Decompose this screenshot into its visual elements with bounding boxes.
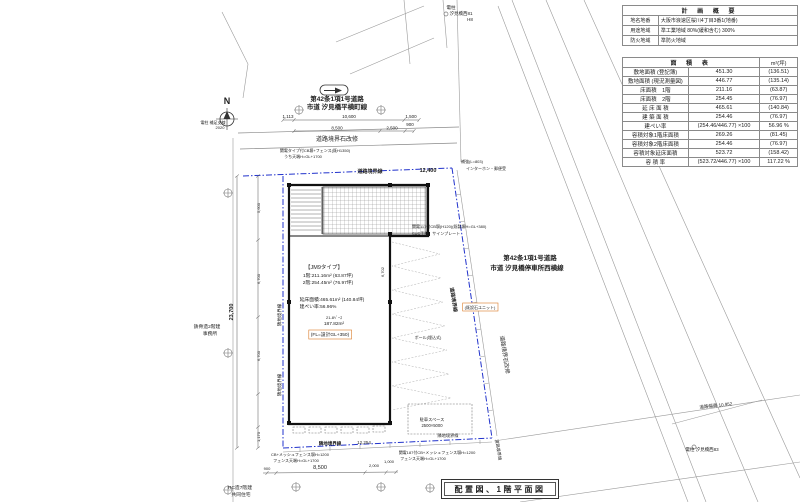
dim: 2,000 [369,463,380,468]
area-row-tsubo: 117.22 % [760,158,798,167]
plan-row-label: 用途地域 [623,26,659,36]
pole-symbol [444,12,448,16]
plan-row-value: 準防火地域 [658,36,797,46]
note-box: (FL=設計GL+350) [311,331,350,338]
note: 187.82m² [324,321,345,327]
dim: 1,000 [384,459,395,464]
table-row: 敷地面積 (登記簿)451.30(136.51) [623,68,798,77]
pole-note: 汐見橋西81 [449,10,473,17]
fence-note: CB+メッシュフェンス塀H=1200 [271,451,330,457]
fence-note: 関電117付CB塀(H120)(既製塀H=GL+380) [412,223,487,229]
area-row-value: 465.61 [688,104,760,113]
fence-note: 関電187付CB+メッシュフェンス塀H=1200 [399,449,476,455]
note: SUS手摺、サインプレート [412,230,460,236]
site-boundary-label: 隣地境界線 [276,303,283,326]
dim: 1,500 [405,114,417,119]
pole-note: 電柱 汐見橋西83 [685,446,719,453]
table-row: 床面積 2階254.45(76.97) [623,95,798,104]
road-name-north: 市道 汐見橋平横町線 [307,102,368,111]
site-plan-sheet: N電柱 補足支線2020電柱汐見橋西81H8マンホール第42条1項1号道路市道 … [0,0,800,502]
area-row-tsubo: (158.42) [760,149,798,158]
plan-row-label: 地名地番 [623,16,659,26]
note: 補強(L=803) [461,158,484,164]
pole-note: H8 [467,17,473,22]
area-row-value: (523.72/446.77) ×100 [688,158,760,167]
neighbor-building-label: RC造7階建 [228,484,252,491]
pole-note: 2020 [216,125,226,130]
area-row-value: 451.30 [688,68,760,77]
drawing-title-box: 配置図、1階平面図 [441,479,559,499]
area-row-label: 建ぺい率 [623,122,689,131]
plan-overview-table: 計 画 概 要 地名地番大阪市浪速区桜川4丁目3番1(地番)用途地域準工業地域 … [622,5,798,46]
building-entrance-hatch [323,187,426,234]
area-row-label: 延 床 面 積 [623,104,689,113]
site-boundary-label: 隣地境界線 [276,373,283,396]
table-row: 敷地面積 (現況測量図)446.77(135.14) [623,77,798,86]
fence-note: 関電タイプ付CB塀+フェンス(既H1350) [280,147,351,153]
road-boundary-label: 道路境界線 [493,439,503,462]
area-row-label: 床面積 2階 [623,95,689,104]
dim: 6,700 [256,273,261,284]
dim: 12,254 [357,440,371,445]
site-boundary-label: 隣地境界線 [438,432,460,439]
area-row-value: 446.77 [688,77,760,86]
area-row-label: 敷地面積 (登記簿) [623,68,689,77]
dim: 6,702 [380,266,385,277]
dim: 10,600 [342,114,356,119]
table-row: 床面積 1階211.16(63.87) [623,86,798,95]
neighbor-building-label: 事務所 [203,330,218,337]
parking-label: 2500×5000 [421,423,443,428]
area-row-tsubo: (76.97) [760,95,798,104]
area-row-tsubo: (76.97) [760,113,798,122]
note-box: (既設石ユニット) [465,304,496,310]
fence-note: フェンス天端H=GL+1700 [273,457,319,463]
note: インターホン・郵便受 [466,165,506,171]
north-label: N [224,96,231,106]
area-row-value: 523.72 [688,149,760,158]
road-name-north: 第42条1項1号道路 [310,94,364,103]
plan-row-value: 準工業地域 80%(緩和含む) 300% [658,26,797,36]
east-strip-zigzag [392,242,451,410]
dim: 1,170 [256,431,261,442]
building-area-note: 2階:254.45m² (76.97坪) [303,279,354,286]
area-table-header-row: 面 積 表 m²(坪) [623,58,798,68]
dim: 8,500 [313,465,327,471]
area-row-label: 容積対象延床面積 [623,149,689,158]
area-row-label: 容積対象2階床面積 [623,140,689,149]
dim: 2,500 [386,126,398,131]
table-row: 地名地番大阪市浪速区桜川4丁目3番1(地番) [623,16,798,26]
table-row: 防火地域準防火地域 [623,36,798,46]
area-row-tsubo: (81.45) [760,131,798,140]
parking-label: 駐車スペース [420,416,445,423]
building-area-note: 延床面積:465.61m² (140.84坪) [300,296,365,303]
area-row-value: 269.26 [688,131,760,140]
fence-note: うち天端H=GL+1700 [284,153,323,159]
area-row-label: 床面積 1階 [623,86,689,95]
road-name-east: 第42条1項1号道路 [503,253,557,262]
area-table-unit: m²(坪) [760,58,798,68]
area-table-title: 面 積 表 [623,58,760,68]
area-row-label: 容積対象1階床面積 [623,131,689,140]
drawing-title: 配置図、1階平面図 [444,482,556,496]
area-row-value: 211.16 [688,86,760,95]
area-row-tsubo: (76.97) [760,140,798,149]
note: ポール(埋込式) [415,334,442,340]
neighbor-building-label: 鉄骨造2階建 [194,323,221,330]
area-row-value: (254.46/446.77) ×100 [688,122,760,131]
dim: 5,600 [256,202,261,213]
one-way-arrow-symbol [320,85,348,95]
curb-repair-label: 道路境界石改修 [316,135,358,143]
table-row: 用途地域準工業地域 80%(緩和含む) 300% [623,26,798,36]
table-row: 容積対象1階床面積269.26(81.45) [623,131,798,140]
table-row: 延 床 面 積465.61(140.84) [623,104,798,113]
road-boundary-label: 道路境界線 [357,168,382,175]
neighbor-building-label: 共同住宅 [231,491,250,498]
dim: 8,500 [331,126,343,131]
area-table: 面 積 表 m²(坪) 敷地面積 (登記簿)451.30(136.51)敷地面積… [622,57,798,167]
area-row-tsubo: (135.14) [760,77,798,86]
area-row-tsubo: (136.51) [760,68,798,77]
table-row: 容 積 率(523.72/446.77) ×100117.22 % [623,158,798,167]
building-type-label: 【JM9タイプ】 [305,263,343,271]
area-row-label: 建 築 面 積 [623,113,689,122]
table-row: 容積対象延床面積523.72(158.42) [623,149,798,158]
dim: 1,113 [283,114,294,119]
plan-table-title-row: 計 画 概 要 [623,6,798,16]
curb-repair-label: 道路境界石改修 [498,335,512,375]
area-row-tsubo: (140.84) [760,104,798,113]
dim: 12,400 [420,168,437,174]
area-row-tsubo: 56.96 % [760,122,798,131]
area-row-value: 254.46 [688,113,760,122]
table-row: 容積対象2階床面積254.46(76.97) [623,140,798,149]
plan-table-title: 計 画 概 要 [623,6,798,16]
dim: 900 [264,466,271,471]
table-row: 建ぺい率(254.46/446.77) ×10056.96 % [623,122,798,131]
building-outline [287,183,430,425]
area-row-label: 敷地面積 (現況測量図) [623,77,689,86]
plan-row-label: 防火地域 [623,36,659,46]
building-area-note: 建ぺい率:56.96% [300,303,338,310]
area-table-rows: 敷地面積 (登記簿)451.30(136.51)敷地面積 (現況測量図)446.… [623,68,798,167]
pole-note: 電柱 [447,4,456,11]
area-row-value: 254.45 [688,95,760,104]
site-boundary-label: 隣地境界線 [319,440,342,447]
plan-row-value: 大阪市浪速区桜川4丁目3番1(地番) [658,16,797,26]
dim: 900 [406,122,414,127]
area-row-tsubo: (63.87) [760,86,798,95]
plan-table-rows: 地名地番大阪市浪速区桜川4丁目3番1(地番)用途地域準工業地域 80%(緩和含む… [623,16,798,46]
table-row: 建 築 面 積254.46(76.97) [623,113,798,122]
note: 21-8ﾍﾞｰｽ [326,315,342,320]
area-row-value: 254.46 [688,140,760,149]
fence-note: フェンス天端H=GL+1700 [400,455,446,461]
dim: 6,700 [256,350,261,361]
road-boundary-label: 道路境界線 [448,287,459,313]
road-name-east: 市道 汐見橋停車所西横線 [490,263,564,272]
building-area-note: 1階:211.16m² (63.87坪) [303,272,353,279]
area-row-label: 容 積 率 [623,158,689,167]
dim: 23,700 [229,304,235,321]
